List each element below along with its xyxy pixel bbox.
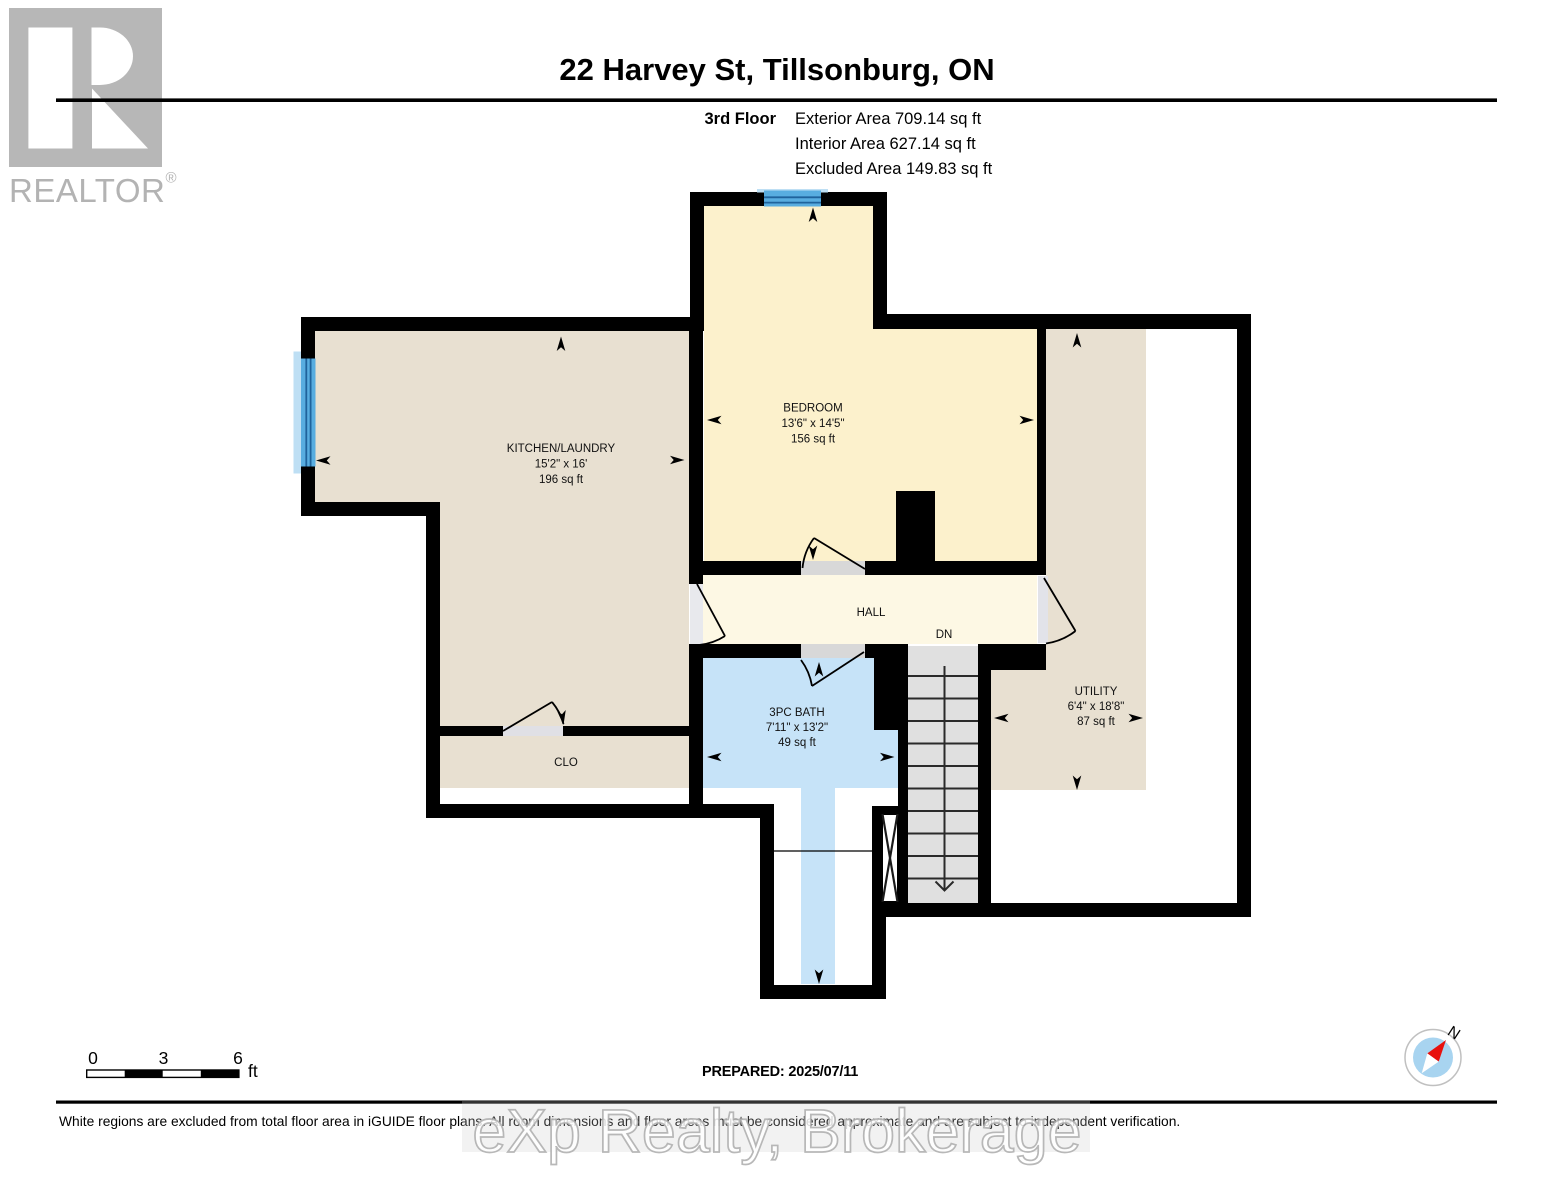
svg-text:ft: ft (248, 1061, 258, 1081)
svg-text:Excluded Area 149.83 sq ft: Excluded Area 149.83 sq ft (795, 160, 993, 178)
svg-text:Interior Area 627.14 sq ft: Interior Area 627.14 sq ft (795, 135, 976, 153)
svg-text:PREPARED: 2025/07/11: PREPARED: 2025/07/11 (702, 1064, 858, 1080)
svg-text:KITCHEN/LAUNDRY: KITCHEN/LAUNDRY (507, 443, 616, 455)
svg-text:eXp Realty, Brokerage: eXp Realty, Brokerage (472, 1097, 1081, 1165)
svg-text:BEDROOM: BEDROOM (783, 403, 842, 415)
svg-text:®: ® (166, 170, 177, 187)
svg-text:196 sq ft: 196 sq ft (539, 474, 584, 486)
svg-text:7'11" x 13'2": 7'11" x 13'2" (766, 722, 828, 734)
svg-text:HALL: HALL (857, 607, 886, 619)
svg-text:3PC BATH: 3PC BATH (769, 707, 824, 719)
svg-text:87 sq ft: 87 sq ft (1077, 716, 1116, 728)
svg-text:22 Harvey St, Tillsonburg, ON: 22 Harvey St, Tillsonburg, ON (559, 52, 994, 87)
svg-text:3: 3 (159, 1048, 169, 1068)
svg-text:13'6" x 14'5": 13'6" x 14'5" (781, 418, 844, 430)
svg-text:3rd Floor: 3rd Floor (704, 110, 776, 128)
svg-text:Exterior Area 709.14 sq ft: Exterior Area 709.14 sq ft (795, 110, 982, 128)
svg-text:49 sq ft: 49 sq ft (778, 737, 817, 749)
svg-text:UTILITY: UTILITY (1075, 686, 1118, 698)
svg-text:6'4" x 18'8": 6'4" x 18'8" (1068, 701, 1125, 713)
svg-text:DN: DN (936, 629, 953, 641)
svg-text:156 sq ft: 156 sq ft (791, 434, 836, 446)
svg-text:15'2" x 16': 15'2" x 16' (535, 459, 588, 471)
svg-text:0: 0 (88, 1048, 98, 1068)
svg-text:CLO: CLO (554, 757, 578, 769)
svg-text:REALTOR: REALTOR (9, 172, 165, 209)
svg-text:6: 6 (233, 1048, 243, 1068)
